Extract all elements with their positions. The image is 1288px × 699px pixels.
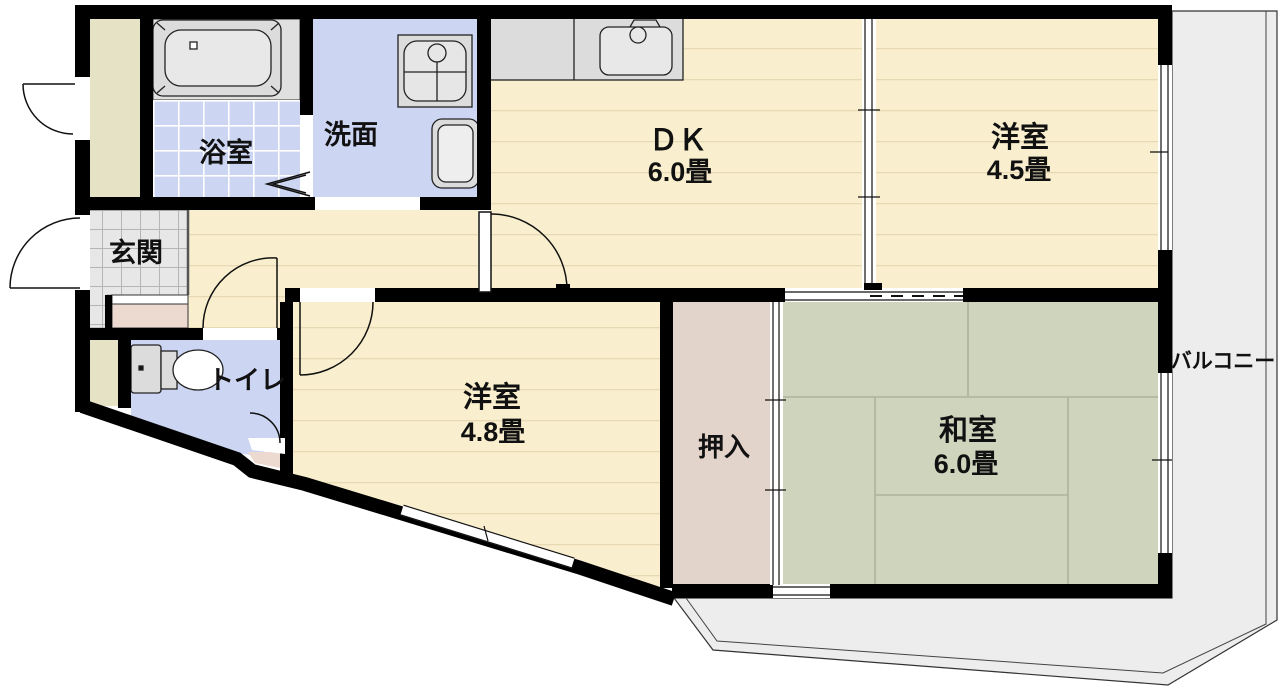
entrance-label: 玄関 [109, 237, 163, 268]
storage-strip [90, 19, 140, 197]
floors [83, 19, 1158, 590]
toilet-label: トイレ [208, 365, 286, 395]
kitchen-counter [490, 14, 683, 80]
window-japanese-bottom [773, 584, 830, 598]
dk-label: ＤＫ [649, 125, 707, 157]
washing-machine-icon [432, 119, 479, 188]
side-closet [88, 340, 118, 406]
west45-label: 洋室 [991, 120, 1049, 154]
bathtub-icon [153, 20, 281, 96]
fusuma-japanese-top [785, 290, 963, 302]
japanese-room-size: 6.0畳 [934, 449, 999, 479]
west48-label: 洋室 [463, 380, 521, 414]
dk-size: 6.0畳 [648, 157, 713, 187]
closet-label: 押入 [698, 432, 750, 462]
west45-size: 4.5畳 [987, 155, 1052, 185]
washroom-label: 洗面 [324, 120, 378, 150]
door-entrance [10, 215, 90, 290]
west48-size: 4.8畳 [461, 417, 526, 447]
japanese-room-label: 和室 [939, 413, 997, 447]
bathroom-label: 浴室 [199, 137, 253, 168]
wall-bottom-right [672, 584, 1172, 598]
floor-plan: 浴室 洗面 ＤＫ 6.0畳 洋室 4.5畳 玄関 トイレ 洋室 4.8畳 押入 … [0, 0, 1288, 699]
door-storage-left [23, 77, 90, 140]
washbasin-icon [398, 35, 472, 107]
shoe-cabinet-top [112, 295, 188, 304]
balcony-label: バルコニー [1171, 350, 1276, 373]
wall-top [75, 5, 1172, 19]
